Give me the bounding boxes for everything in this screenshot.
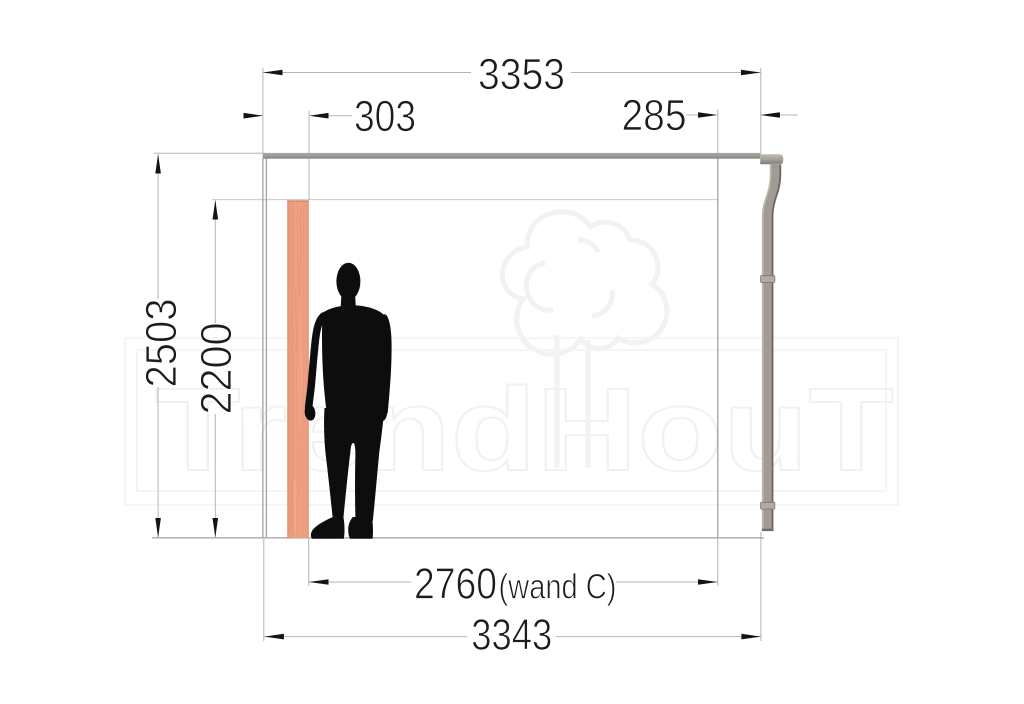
svg-text:2503: 2503: [138, 299, 186, 388]
svg-text:2200: 2200: [193, 323, 241, 415]
svg-text:3353: 3353: [478, 51, 565, 99]
svg-text:2760: 2760: [414, 561, 497, 609]
svg-text:285: 285: [622, 92, 687, 140]
svg-text:3343: 3343: [471, 612, 552, 660]
svg-text:(wand C): (wand C): [499, 568, 617, 607]
svg-text:303: 303: [354, 93, 416, 141]
